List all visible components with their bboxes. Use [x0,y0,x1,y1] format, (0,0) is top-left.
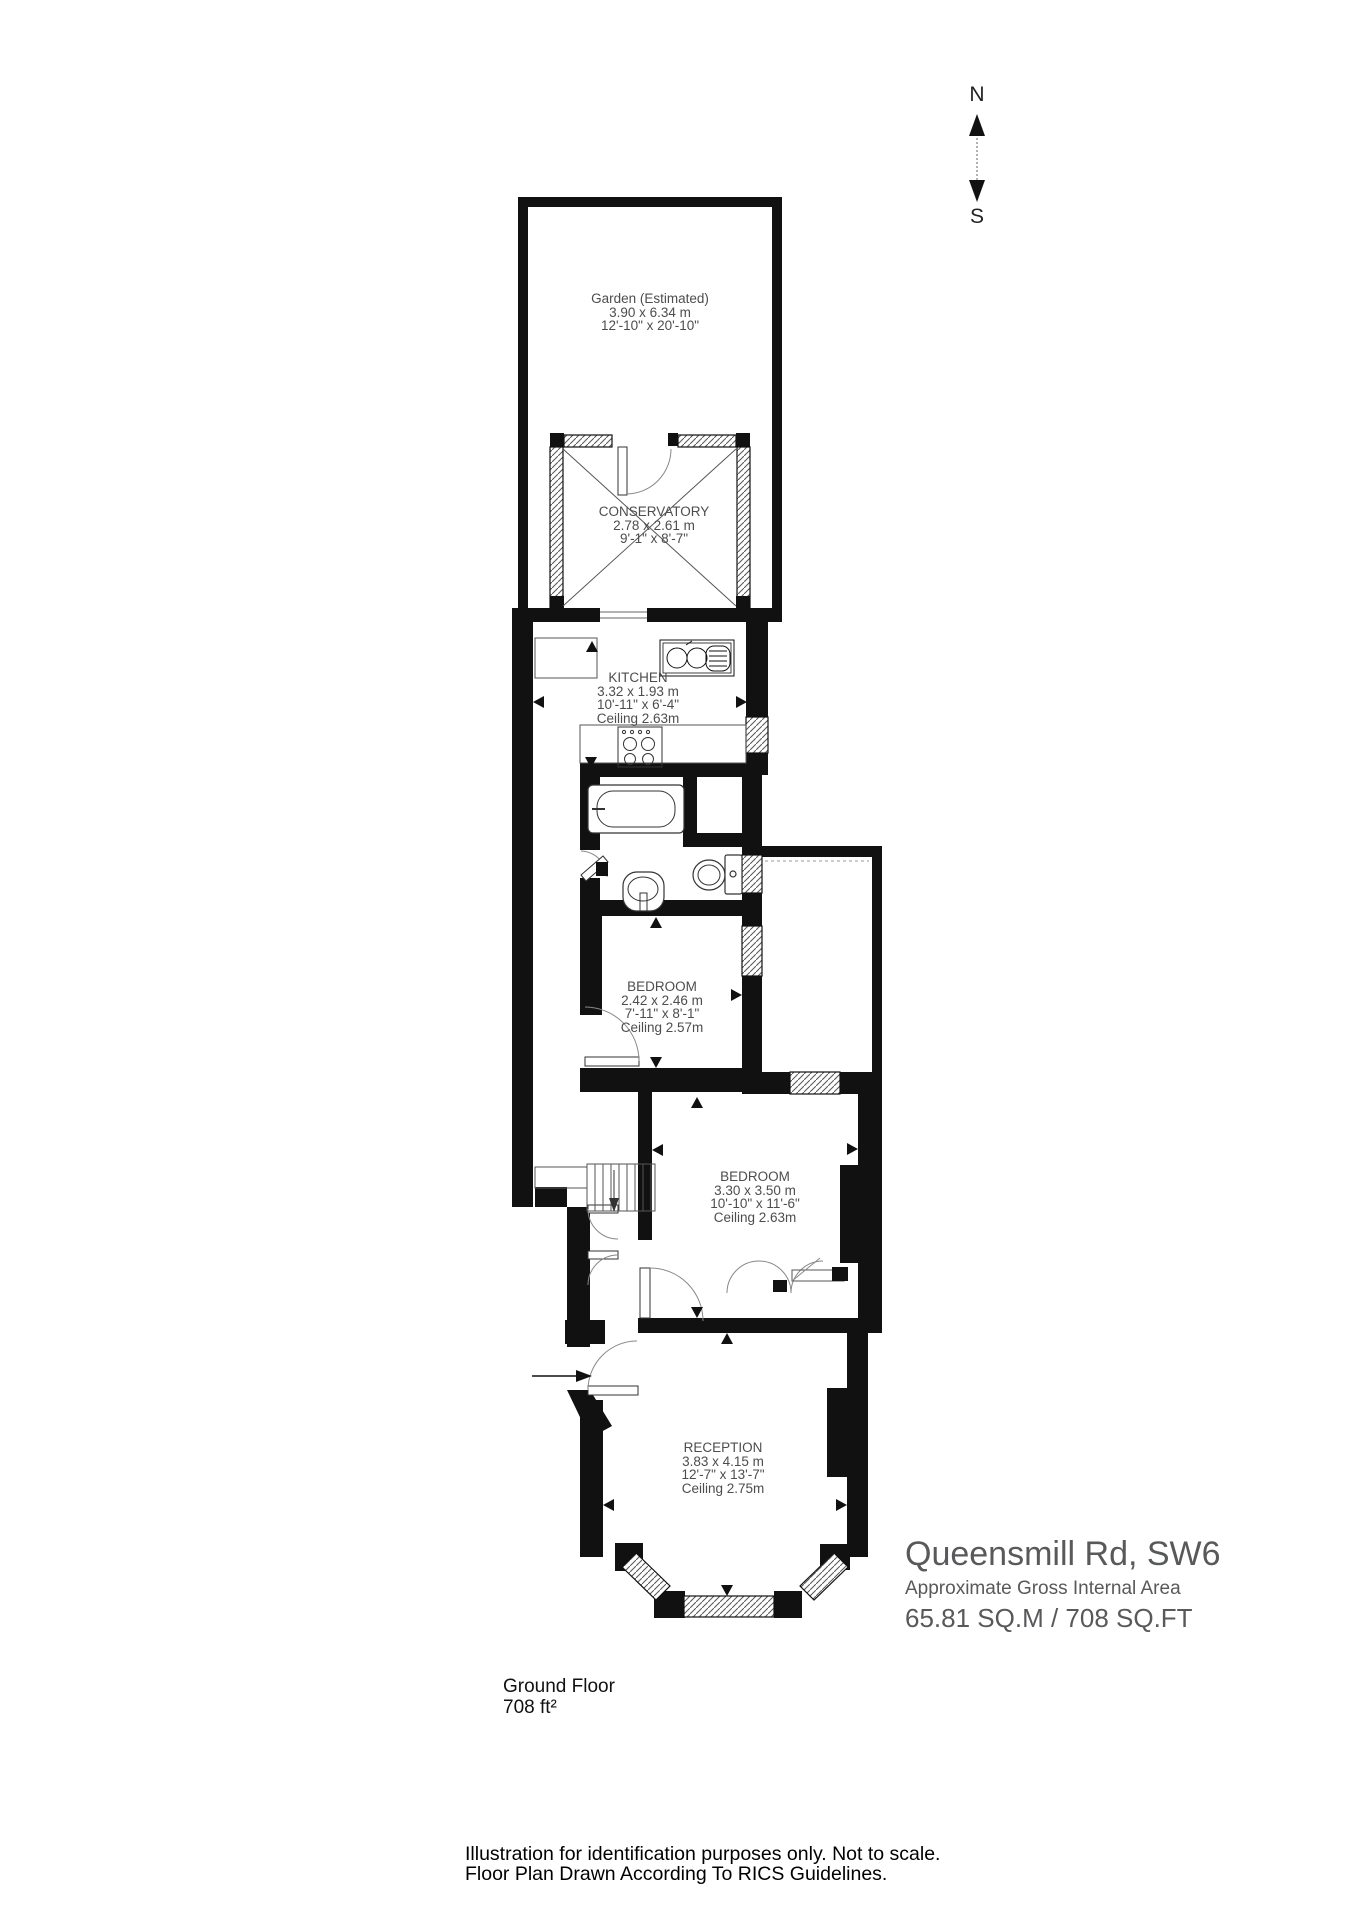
footer-disclaimer: Illustration for identification purposes… [465,1844,940,1884]
bedroom2-metric: 3.30 x 3.50 m [710,1184,800,1198]
room-label-garden: Garden (Estimated) 3.90 x 6.34 m 12'-10"… [591,292,709,333]
conservatory-imperial: 9'-1" x 8'-7" [599,532,710,546]
bedroom2-imperial: 10'-10" x 11'-6" [710,1197,800,1211]
footer-line2: Floor Plan Drawn According To RICS Guide… [465,1864,940,1884]
floor-plan-page: N S Garden (Estimated) 3.90 x 6.34 m 12'… [0,0,1357,1920]
kitchen-imperial: 10'-11" x 6'-4" [597,698,680,712]
bathroom-fixtures [581,785,742,911]
bedroom1-metric: 2.42 x 2.46 m [621,994,704,1008]
bathtub-icon [588,785,684,833]
kitchen-counter-bottom [580,725,746,763]
garden-metric: 3.90 x 6.34 m [591,306,709,320]
bay-window-center [684,1596,774,1617]
toilet-icon [693,855,742,894]
kitchen-name: KITCHEN [597,671,680,685]
garden-name: Garden (Estimated) [591,292,709,306]
room-label-bedroom1: BEDROOM 2.42 x 2.46 m 7'-11" x 8'-1" Cei… [621,980,704,1034]
reception-metric: 3.83 x 4.15 m [681,1455,764,1469]
bedroom1-name: BEDROOM [621,980,704,994]
room-label-conservatory: CONSERVATORY 2.78 x 2.61 m 9'-1" x 8'-7" [599,505,710,546]
bedroom2-door [640,1268,703,1321]
kitchen-metric: 3.32 x 1.93 m [597,685,680,699]
property-address: Queensmill Rd, SW6 [905,1536,1221,1572]
bay-window-left [622,1553,670,1600]
bathroom-window [742,855,762,893]
reception-imperial: 12'-7" x 13'-7" [681,1468,764,1482]
garden-imperial: 12'-10" x 20'-10" [591,319,709,333]
kitchen-window [746,717,768,753]
footer-line1: Illustration for identification purposes… [465,1844,940,1864]
wardrobe-doors [727,1258,848,1293]
area-subtitle: Approximate Gross Internal Area [905,1579,1221,1598]
bedroom2-window [790,1072,840,1094]
compass-south-label: S [970,206,984,227]
room-label-kitchen: KITCHEN 3.32 x 1.93 m 10'-11" x 6'-4" Ce… [597,671,680,725]
area-value: 65.81 SQ.M / 708 SQ.FT [905,1605,1221,1631]
stove-icon [618,727,662,767]
conservatory-name: CONSERVATORY [599,505,710,519]
conservatory-metric: 2.78 x 2.61 m [599,519,710,533]
floor-name: Ground Floor [503,1676,615,1697]
threshold-lines [600,612,647,618]
compass-arrow-icon [969,114,985,202]
front-door [588,1341,638,1395]
basin-icon [623,872,664,911]
bedroom2-ceiling: Ceiling 2.63m [710,1211,800,1225]
kitchen-ceiling: Ceiling 2.63m [597,712,680,726]
entrance-arrow-icon [532,1370,592,1382]
bedroom1-window [742,926,762,976]
floor-area: 708 ft² [503,1697,615,1718]
title-block: Queensmill Rd, SW6 Approximate Gross Int… [905,1536,1221,1631]
room-label-bedroom2: BEDROOM 3.30 x 3.50 m 10'-10" x 11'-6" C… [710,1170,800,1224]
reception-name: RECEPTION [681,1441,764,1455]
floor-label: Ground Floor 708 ft² [503,1676,615,1718]
compass-north-label: N [969,84,984,105]
bedroom1-imperial: 7'-11" x 8'-1" [621,1007,704,1021]
bathroom-door [581,851,608,881]
bedroom2-name: BEDROOM [710,1170,800,1184]
reception-ceiling: Ceiling 2.75m [681,1482,764,1496]
hall-door-2 [588,1251,618,1285]
room-label-reception: RECEPTION 3.83 x 4.15 m 12'-7" x 13'-7" … [681,1441,764,1495]
bedroom1-ceiling: Ceiling 2.57m [621,1021,704,1035]
kitchen-counter-left [535,638,597,678]
